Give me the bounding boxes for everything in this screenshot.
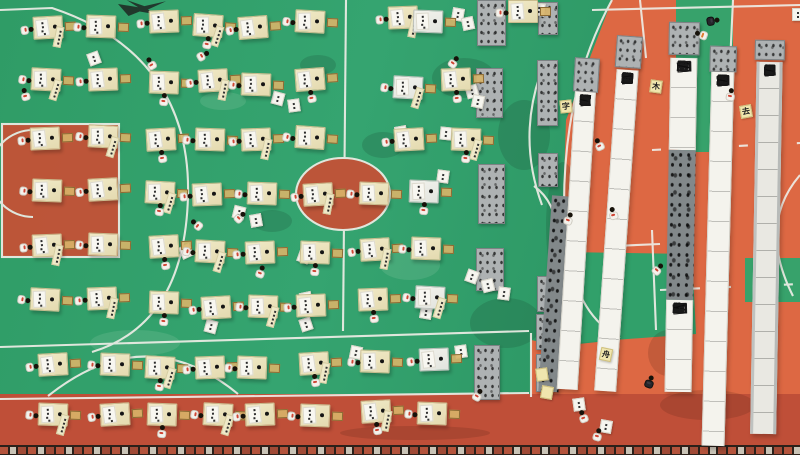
- student-desk: [149, 9, 180, 33]
- calligraphy-sheet: [150, 405, 164, 423]
- stone-table: [537, 60, 558, 126]
- student-figure: [396, 243, 412, 255]
- student-desk: [88, 67, 119, 91]
- ink-stone: [437, 411, 441, 415]
- calligraphy-sheet: [206, 405, 220, 422]
- student-figure: [226, 79, 242, 91]
- schoolyard-aerial-photo: 誰盤曉迴舟誂帝記年日孫沉醉不知歸興盡曉說住泰和萬千上遷南江到若去歸君送又緣春送始…: [0, 0, 800, 455]
- student-hair: [83, 78, 88, 83]
- student-desk: [360, 349, 391, 373]
- ink-stone: [315, 135, 319, 139]
- student-hair: [412, 412, 417, 417]
- student-hair: [83, 134, 89, 140]
- student-body: [136, 19, 145, 29]
- calligraphy-sheet: [363, 402, 378, 421]
- ink-stone: [106, 24, 110, 28]
- calligraphy-sheet: [414, 239, 428, 257]
- ink-stone: [265, 412, 269, 416]
- banner-writing-table: [755, 40, 785, 61]
- calligraphy-sheet: [303, 406, 317, 424]
- calligraphy-sheet: [240, 358, 254, 376]
- student-body: [306, 94, 316, 104]
- student-hair: [82, 297, 87, 302]
- student-figure: [281, 302, 297, 314]
- student-body: [20, 25, 29, 35]
- banner-writing-table: [709, 46, 737, 73]
- student-hair: [196, 306, 202, 312]
- calligraphy-sheet: [194, 185, 209, 203]
- calligraphy-sheet: [390, 8, 405, 26]
- student-body: [75, 131, 84, 141]
- calligraphy-character: 卆: [667, 300, 692, 316]
- ink-stone: [320, 250, 324, 254]
- student-desk: [149, 290, 180, 314]
- calligraphy-character: 說: [575, 91, 595, 108]
- student-body: [228, 80, 237, 90]
- student-body: [283, 303, 292, 313]
- calligraphy-sheet: [203, 298, 218, 317]
- loose-paper: [249, 213, 263, 228]
- student-body: [372, 426, 382, 435]
- ink-stone: [261, 82, 265, 86]
- student-body: [643, 379, 654, 390]
- ink-stone: [169, 244, 173, 248]
- banner-segment: 紫懷張卆寺天至: [669, 58, 698, 150]
- student-figure: [134, 18, 150, 30]
- boundary-green-red: [0, 393, 529, 399]
- chair: [332, 412, 343, 421]
- chair: [540, 7, 551, 16]
- student-desk: [87, 124, 118, 149]
- calligraphy-sheet: [298, 296, 313, 314]
- ink-stone: [169, 80, 173, 84]
- calligraphy-sheet: [303, 243, 317, 261]
- student-figure: [460, 150, 472, 166]
- student-desk: [248, 294, 279, 318]
- calligraphy-sheet: [152, 73, 166, 91]
- ink-stone: [414, 137, 418, 141]
- chair: [332, 249, 343, 258]
- student-desk: [32, 233, 63, 257]
- student-desk: [99, 402, 130, 427]
- student-desk: [87, 177, 118, 202]
- student-body: [404, 409, 413, 419]
- ink-stone: [58, 362, 62, 366]
- student-hair: [410, 295, 416, 301]
- student-figure: [373, 14, 389, 26]
- student-figure: [404, 356, 420, 368]
- student-hair: [144, 20, 149, 25]
- student-hair: [81, 25, 86, 30]
- calligraphy-sheet: [362, 184, 376, 202]
- ink-stone: [108, 187, 112, 191]
- student-body: [232, 250, 241, 260]
- student-desk: [241, 72, 272, 96]
- calligraphy-sheet: [90, 180, 105, 199]
- student-hair: [27, 244, 32, 249]
- student-figure: [180, 134, 196, 146]
- student-body: [17, 136, 26, 146]
- student-body: [310, 378, 320, 387]
- student-figure: [156, 425, 168, 441]
- student-desk: [241, 127, 272, 151]
- student-body: [460, 155, 470, 164]
- ink-stone: [50, 297, 54, 301]
- student-body: [496, 8, 504, 17]
- student-hair: [26, 77, 32, 83]
- student-hair: [504, 10, 509, 15]
- student-desk: [148, 234, 179, 259]
- student-figure: [23, 409, 39, 421]
- student-hair: [236, 83, 241, 88]
- student-body: [725, 92, 735, 101]
- chair: [277, 247, 288, 256]
- student-desk: [508, 0, 538, 23]
- student-body: [19, 243, 28, 253]
- chair: [449, 410, 460, 419]
- student-figure: [400, 291, 416, 303]
- chair: [327, 18, 338, 28]
- student-body: [87, 360, 96, 370]
- ink-stone: [379, 191, 383, 195]
- student-desk: [417, 401, 448, 425]
- student-body: [182, 246, 191, 256]
- chair: [426, 134, 437, 144]
- ink-stone: [108, 242, 112, 246]
- student-body: [698, 30, 709, 41]
- student-hair: [33, 363, 39, 369]
- chair: [327, 134, 339, 144]
- student-hair: [83, 188, 89, 194]
- calligraphy-sheet: [102, 405, 117, 424]
- calligraphy-sheet: [251, 297, 265, 315]
- student-body: [182, 135, 191, 145]
- student-body: [309, 268, 319, 277]
- student-desk: [358, 287, 389, 311]
- student-hair: [95, 363, 100, 368]
- ink-stone: [221, 305, 225, 309]
- loose-paper: [497, 286, 511, 301]
- ink-stone: [167, 412, 171, 416]
- student-body: [158, 98, 168, 107]
- student-body: [282, 16, 291, 26]
- calligraphy-sheet: [412, 182, 426, 200]
- calligraphy-sheet: [247, 243, 262, 261]
- student-desk: [300, 240, 331, 264]
- student-figure: [158, 93, 170, 109]
- student-hair: [25, 137, 30, 142]
- student-desk: [145, 127, 176, 152]
- student-body: [398, 244, 407, 254]
- student-desk: [300, 403, 331, 427]
- student-body: [157, 154, 167, 163]
- banner-segment: [666, 150, 696, 300]
- student-desk: [245, 402, 276, 426]
- calligraphy-sheet: [33, 290, 47, 307]
- student-desk: [237, 15, 269, 40]
- student-figure: [378, 81, 394, 93]
- calligraphy-sheet: [91, 235, 105, 253]
- student-body: [232, 412, 241, 422]
- student-figure: [371, 421, 383, 437]
- calligraphy-sheet: [418, 288, 432, 305]
- student-body: [20, 92, 31, 102]
- chair: [391, 190, 402, 199]
- calligraphy-sheet: [34, 70, 48, 87]
- calligraphy-sheet: [305, 185, 320, 204]
- student-body: [185, 78, 194, 88]
- student-desk: [200, 295, 231, 320]
- student-figure: [280, 15, 296, 27]
- student-body: [706, 16, 715, 26]
- calligraphy-sheet: [152, 293, 166, 311]
- loose-paper: [461, 16, 475, 31]
- student-body: [158, 318, 168, 327]
- student-hair: [291, 304, 296, 309]
- calligraphy-sheet: [200, 71, 215, 90]
- student-hair: [28, 26, 34, 32]
- calligraphy-sheet: [198, 130, 212, 148]
- tiled-edge-strip: [0, 445, 800, 455]
- calligraphy-sheet: [89, 289, 104, 307]
- calligraphy-sheet: [244, 75, 258, 93]
- ink-stone: [169, 19, 173, 23]
- ink-stone: [215, 365, 219, 369]
- chair: [473, 74, 484, 83]
- student-body: [381, 137, 390, 147]
- chair: [120, 241, 131, 250]
- student-body: [18, 74, 27, 84]
- student-body: [578, 414, 589, 425]
- chair: [447, 294, 458, 304]
- student-hair: [355, 248, 361, 254]
- ink-stone: [169, 300, 173, 304]
- student-desk: [195, 127, 226, 151]
- ink-stone: [431, 246, 435, 250]
- calligraphy-sheet: [148, 183, 162, 200]
- student-figure: [344, 188, 360, 200]
- banner-segment: 本亦民悞張卆: [665, 300, 694, 392]
- student-desk: [86, 14, 117, 38]
- student-body: [182, 365, 191, 375]
- student-desk: [100, 352, 131, 376]
- ink-stone: [315, 76, 319, 80]
- student-hair: [95, 413, 101, 419]
- chair: [62, 133, 73, 142]
- student-desk: [88, 232, 119, 256]
- ink-stone: [50, 136, 54, 140]
- calligraphy-sheet: [454, 130, 468, 148]
- ink-stone: [320, 413, 324, 417]
- student-figure: [494, 8, 509, 18]
- ink-stone: [215, 137, 219, 141]
- student-body: [225, 25, 235, 35]
- stone-table: [538, 153, 558, 187]
- calligraphy-character: 至: [671, 58, 696, 74]
- student-figure: [15, 293, 31, 305]
- student-hair: [295, 414, 300, 419]
- calligraphy-sheet: [35, 18, 50, 37]
- ink-stone: [212, 192, 216, 196]
- student-body: [235, 302, 244, 312]
- student-body: [369, 315, 379, 324]
- loose-paper: [540, 385, 554, 400]
- calligraphy-sheet: [148, 358, 162, 375]
- calligraphy-sheet: [40, 355, 55, 374]
- student-body: [179, 192, 188, 202]
- student-desk: [409, 179, 440, 203]
- calligraphy-sheet: [151, 237, 166, 256]
- student-desk: [149, 70, 180, 94]
- student-figure: [418, 202, 430, 218]
- student-figure: [158, 313, 170, 329]
- student-body: [290, 192, 299, 202]
- chair: [181, 16, 192, 25]
- student-figure: [71, 21, 87, 33]
- student-figure: [230, 411, 246, 423]
- loose-paper: [287, 98, 301, 113]
- ink-stone: [433, 19, 437, 23]
- chair: [273, 81, 284, 90]
- student-desk: [298, 351, 329, 376]
- student-desk: [144, 180, 175, 205]
- calligraphy-sheet: [41, 405, 55, 423]
- student-body: [156, 430, 166, 439]
- student-desk: [392, 75, 423, 100]
- student-hair: [187, 193, 192, 198]
- student-body: [154, 382, 164, 391]
- student-desk: [30, 126, 61, 150]
- student-hair: [33, 413, 38, 418]
- calligraphy-sheet: [298, 12, 312, 29]
- loose-paper: 去: [739, 104, 753, 119]
- calligraphy-sheet: [250, 184, 264, 202]
- student-figure: [17, 242, 33, 254]
- banner-writing-table: [615, 35, 643, 69]
- student-desk: [192, 182, 223, 206]
- student-hair: [355, 360, 360, 365]
- calligraphy-character: 市: [712, 72, 733, 89]
- calligraphy-sheet: [197, 358, 212, 376]
- student-figure: [233, 301, 249, 313]
- chair: [331, 358, 342, 368]
- student-figure: [73, 76, 89, 88]
- student-body: [418, 207, 428, 216]
- student-desk: [359, 181, 390, 205]
- chair: [451, 354, 462, 363]
- student-hair: [406, 247, 411, 252]
- chair: [441, 188, 452, 197]
- student-hair: [198, 412, 204, 418]
- loose-paper: [792, 8, 800, 21]
- ink-stone: [528, 9, 532, 13]
- student-desk: [32, 178, 63, 202]
- student-desk: [393, 127, 424, 152]
- student-figure: [309, 263, 321, 279]
- student-body: [562, 216, 573, 227]
- student-desk: [247, 181, 278, 205]
- student-hair: [242, 192, 247, 197]
- student-desk: [360, 399, 391, 424]
- student-body: [25, 362, 34, 372]
- student-body: [74, 296, 83, 306]
- student-hair: [298, 193, 304, 199]
- student-hair: [190, 366, 195, 371]
- student-body: [75, 240, 84, 250]
- student-body: [75, 187, 84, 197]
- chair: [328, 300, 339, 309]
- calligraphy-sheet: [91, 127, 105, 144]
- student-body: [154, 207, 164, 216]
- chair: [132, 409, 143, 419]
- student-desk: [29, 287, 60, 312]
- calligraphy-sheet: [362, 240, 377, 259]
- student-desk: [38, 402, 69, 426]
- student-desk: [195, 355, 226, 379]
- calligraphy-sheet: [297, 70, 312, 89]
- student-desk: [451, 127, 482, 151]
- student-figure: [368, 310, 380, 326]
- calligraphy-sheet: [298, 129, 311, 146]
- calligraphy-sheet: [363, 352, 377, 370]
- student-figure: [402, 408, 418, 420]
- calligraphy-sheet: [396, 78, 410, 95]
- calligraphy-sheet: [416, 12, 430, 30]
- student-hair: [240, 413, 245, 418]
- student-figure: [180, 245, 196, 257]
- student-figure: [72, 295, 88, 307]
- calligraphy-character: 盡: [617, 69, 638, 86]
- loose-paper: 字: [559, 99, 572, 113]
- student-desk: [294, 125, 326, 150]
- chair: [392, 358, 403, 367]
- student-desk: [414, 285, 445, 310]
- ink-stone: [120, 362, 124, 366]
- student-body: [375, 15, 384, 25]
- baseline-left-court: [0, 331, 529, 347]
- ink-stone: [429, 189, 433, 193]
- student-desk: [32, 15, 63, 40]
- student-figure: [451, 90, 463, 106]
- calligraphy-sheet: [90, 70, 105, 88]
- calligraphy-sheet: [247, 405, 262, 423]
- student-hair: [190, 138, 195, 143]
- calligraphy-sheet: [35, 181, 49, 199]
- calligraphy-sheet: [103, 355, 117, 373]
- student-figure: [226, 136, 242, 148]
- student-desk: [197, 68, 228, 93]
- student-body: [25, 410, 34, 420]
- student-desk: [294, 67, 326, 92]
- calligraphy-sheet: [151, 12, 166, 30]
- student-figure: [16, 73, 32, 85]
- student-desk: [144, 355, 175, 380]
- student-desk: [413, 9, 444, 33]
- student-hair: [232, 366, 237, 371]
- student-body: [380, 82, 389, 92]
- student-body: [452, 95, 462, 104]
- student-body: [402, 292, 411, 302]
- student-body: [17, 294, 26, 304]
- calligraphy-sheet: [240, 18, 255, 37]
- student-figure: [345, 356, 361, 368]
- student-hair: [25, 297, 31, 303]
- student-body: [75, 77, 84, 87]
- calligraphy-sheet: [198, 242, 212, 259]
- boundary-top-right: [592, 5, 800, 10]
- student-body: [188, 305, 197, 315]
- student-desk: [419, 347, 450, 371]
